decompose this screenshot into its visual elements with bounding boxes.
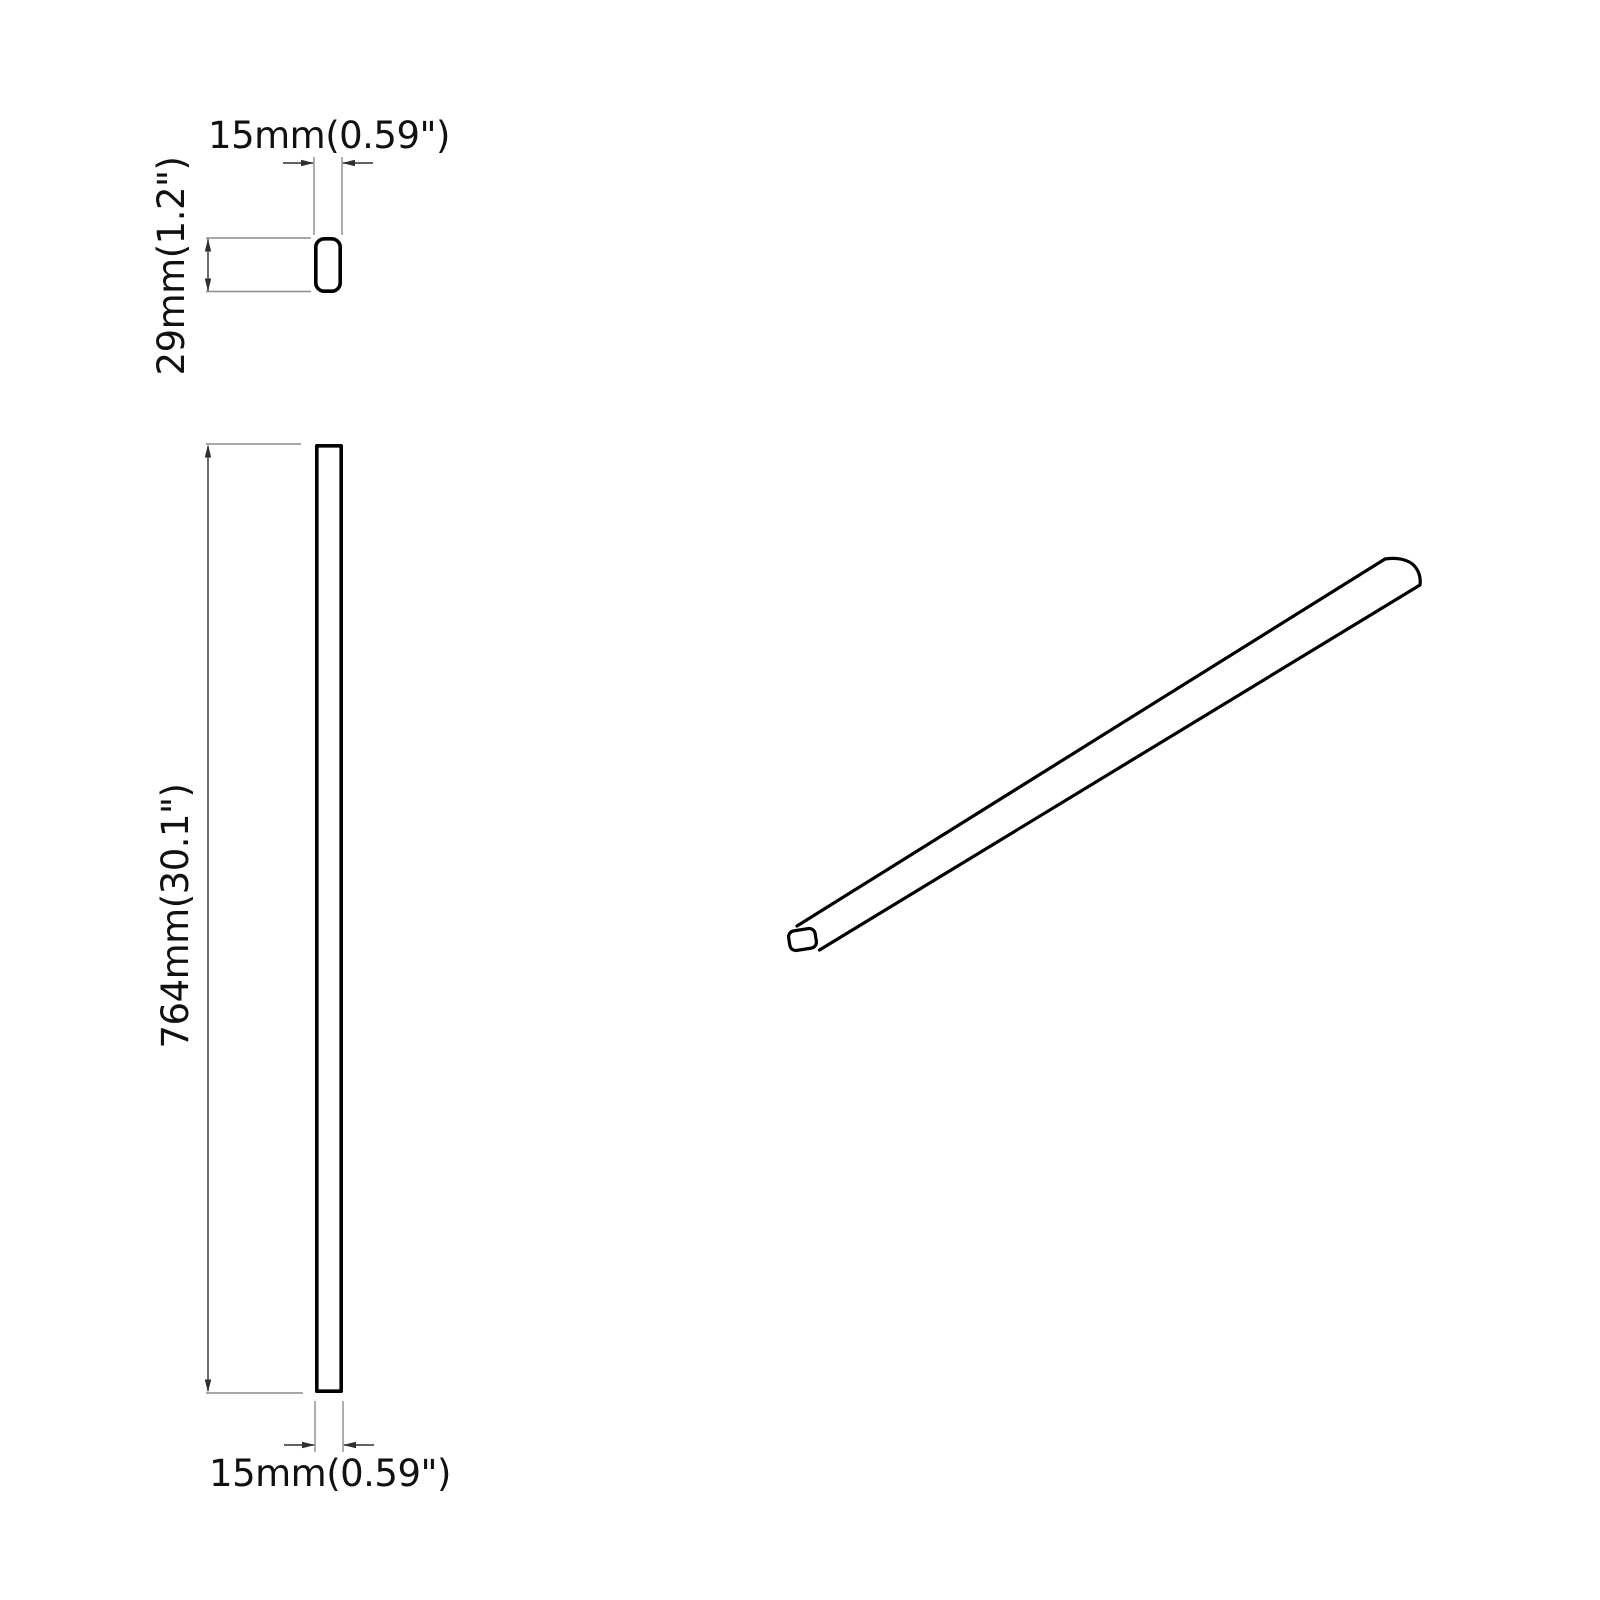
technical-drawing-canvas: 15mm(0.59") 29mm(1.2") 764mm(30.1") 15mm… xyxy=(0,0,1600,1600)
isometric-end-face xyxy=(788,928,818,952)
cross-section-profile-outline xyxy=(316,239,340,291)
arrowhead-up-icon xyxy=(205,239,211,252)
arrowhead-right-icon xyxy=(301,160,314,166)
cross-section-height-label: 29mm(1.2") xyxy=(150,157,193,376)
front-view-bar-outline xyxy=(317,446,341,1391)
front-length-label: 764mm(30.1") xyxy=(154,784,197,1049)
arrowhead-left-icon xyxy=(343,1442,356,1448)
arrowhead-right-icon xyxy=(302,1442,315,1448)
extension-lines-group xyxy=(206,157,343,1452)
profile-bar-dimension-drawing: 15mm(0.59") 29mm(1.2") 764mm(30.1") 15mm… xyxy=(0,0,1600,1600)
cross-section-width-label: 15mm(0.59") xyxy=(208,114,450,157)
arrowhead-up-icon xyxy=(205,445,211,458)
dimension-lines-group xyxy=(208,163,374,1445)
dimension-arrowheads-group xyxy=(205,160,356,1448)
arrowhead-down-icon xyxy=(205,279,211,292)
object-lines-group xyxy=(316,239,1420,1391)
dimension-labels-group: 15mm(0.59") 29mm(1.2") 764mm(30.1") 15mm… xyxy=(150,114,451,1495)
isometric-bar-outline xyxy=(797,558,1420,950)
front-width-label: 15mm(0.59") xyxy=(209,1452,451,1495)
arrowhead-down-icon xyxy=(205,1380,211,1393)
arrowhead-left-icon xyxy=(342,160,355,166)
